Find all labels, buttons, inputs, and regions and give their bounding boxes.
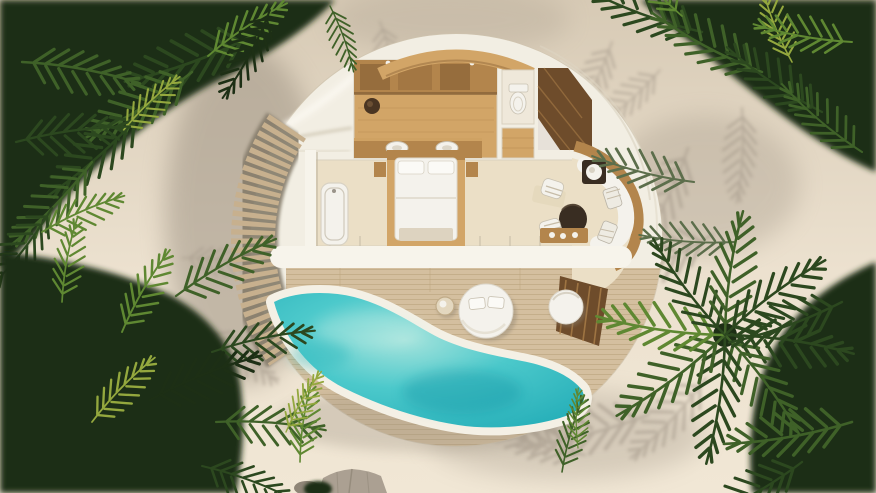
side-table-lamp	[582, 160, 606, 184]
nightstand-right	[466, 162, 478, 177]
tub-faucet	[332, 189, 336, 193]
dressing-room	[354, 60, 497, 158]
bath-shelf	[502, 128, 534, 158]
bed-bench	[399, 228, 453, 241]
wood-console	[540, 228, 588, 243]
daybed-cushion	[488, 296, 505, 308]
partition-wall	[305, 150, 316, 248]
render-canvas	[0, 0, 876, 493]
double-bed	[374, 150, 478, 246]
aerial-villa-render	[0, 0, 876, 493]
bathtub	[321, 183, 348, 245]
terrace-wall-band	[270, 246, 632, 268]
pillow	[398, 161, 424, 174]
toilet-room	[502, 70, 534, 158]
nightstand-left	[374, 162, 386, 177]
pillow	[428, 161, 454, 174]
daybed-cushion	[469, 297, 486, 310]
